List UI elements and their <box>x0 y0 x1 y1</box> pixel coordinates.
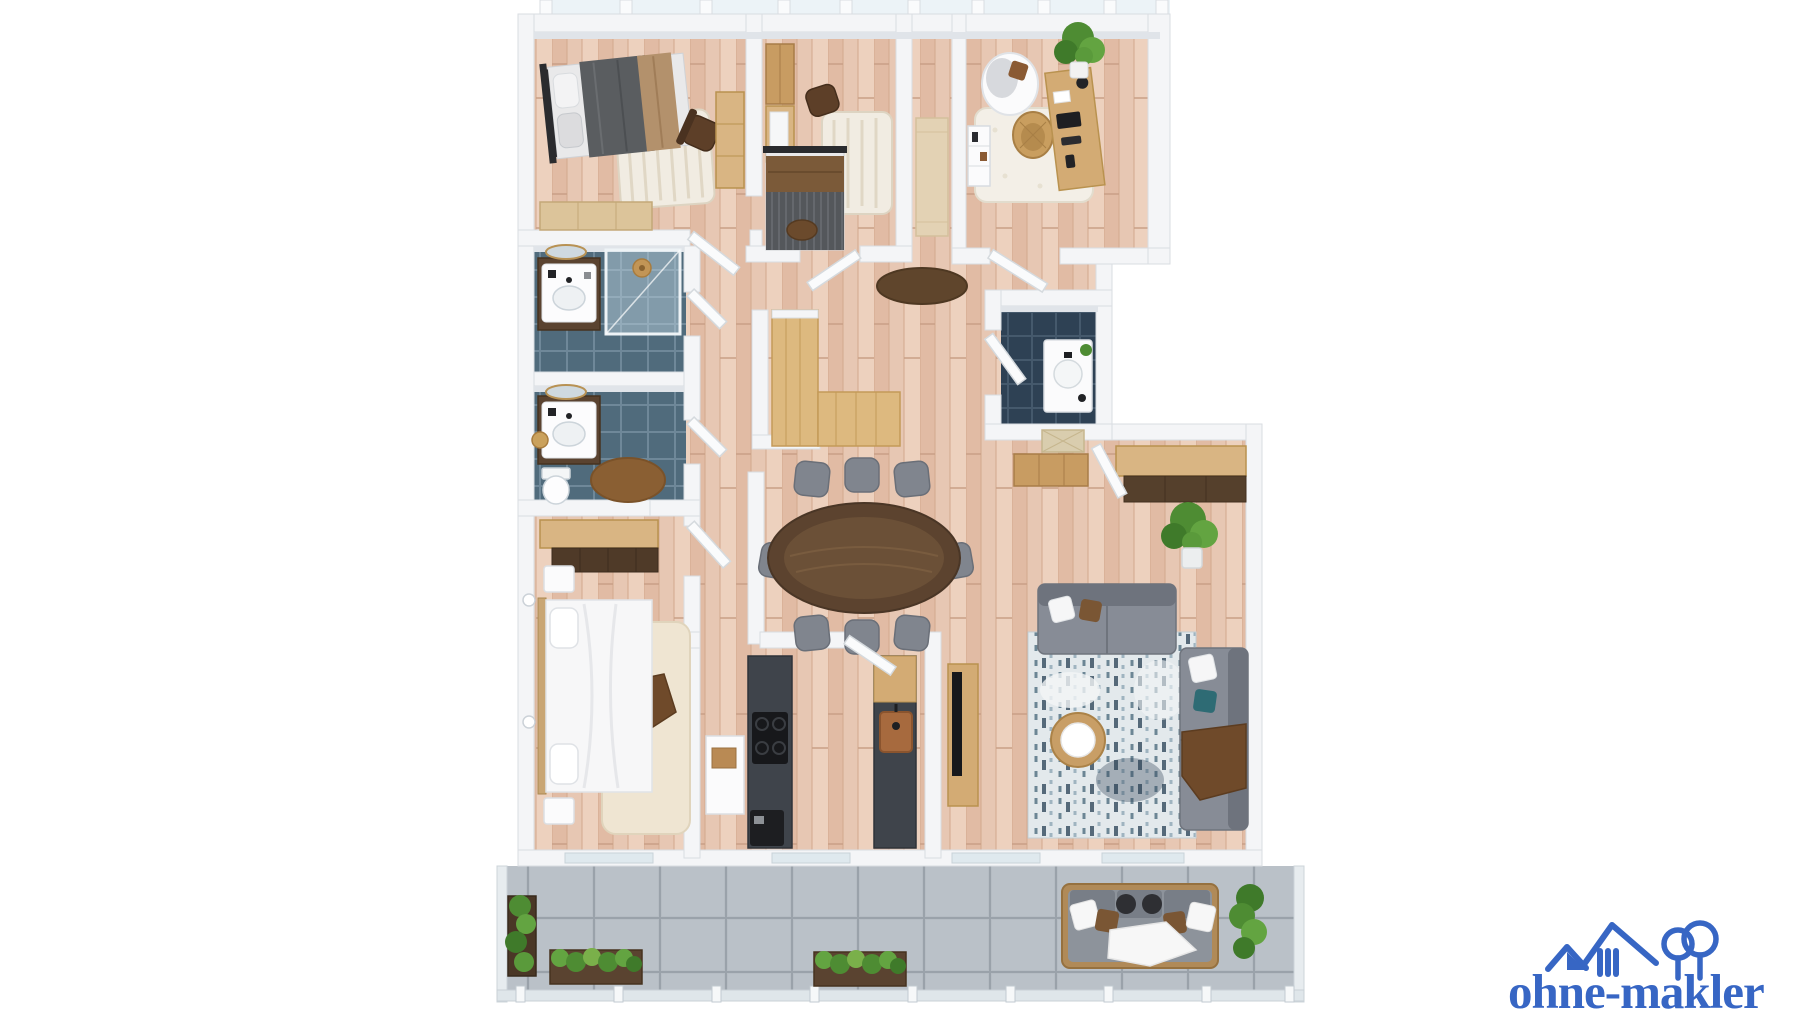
gold-floor-lamp <box>532 432 548 448</box>
sideboard <box>1116 446 1246 502</box>
kitchen-island <box>874 656 916 848</box>
wood-dresser <box>1014 454 1088 486</box>
ladder-shelf <box>968 126 990 186</box>
double-bed <box>538 598 652 794</box>
wardrobe <box>766 44 794 104</box>
hall-bench <box>877 268 967 304</box>
egg-chair <box>982 53 1038 115</box>
outdoor-sofa <box>1062 884 1218 968</box>
floorplan-render <box>0 0 1800 1013</box>
planter-box <box>814 950 906 986</box>
bath-rug <box>591 458 665 502</box>
planter-left <box>505 895 536 976</box>
single-bed <box>539 49 693 164</box>
vanity <box>538 258 600 330</box>
wardrobe <box>540 520 658 572</box>
bathroom-1 <box>538 245 680 334</box>
toilet <box>542 468 570 504</box>
glass-shower <box>606 250 680 334</box>
vanity-mirror <box>546 245 586 259</box>
nightstand <box>544 566 574 592</box>
sofa-horizontal <box>1038 584 1176 654</box>
wicker-chair <box>1013 112 1053 158</box>
bedroom-desk <box>716 92 744 188</box>
floorplan-stage: ohne-makler <box>0 0 1800 1013</box>
vanity-mirror <box>546 385 586 399</box>
throw-blanket <box>1182 724 1246 800</box>
runner-rug <box>916 118 948 236</box>
kitchen-counter <box>748 656 792 848</box>
brand-watermark: ohne-makler <box>1500 905 1800 1013</box>
vanity <box>1044 340 1092 412</box>
low-shelf <box>540 202 652 230</box>
doormat <box>1042 430 1084 452</box>
upper-corridor <box>916 118 948 236</box>
white-desk <box>706 736 744 814</box>
planter-box <box>550 948 642 984</box>
brand-logo-text: ohne-makler <box>1508 967 1800 1013</box>
nightstand <box>544 798 574 824</box>
tv-console <box>948 664 978 806</box>
coffee-table <box>1051 713 1105 767</box>
sofa-vertical <box>1180 648 1248 830</box>
vanity <box>538 396 600 464</box>
foot-stool <box>787 220 817 240</box>
